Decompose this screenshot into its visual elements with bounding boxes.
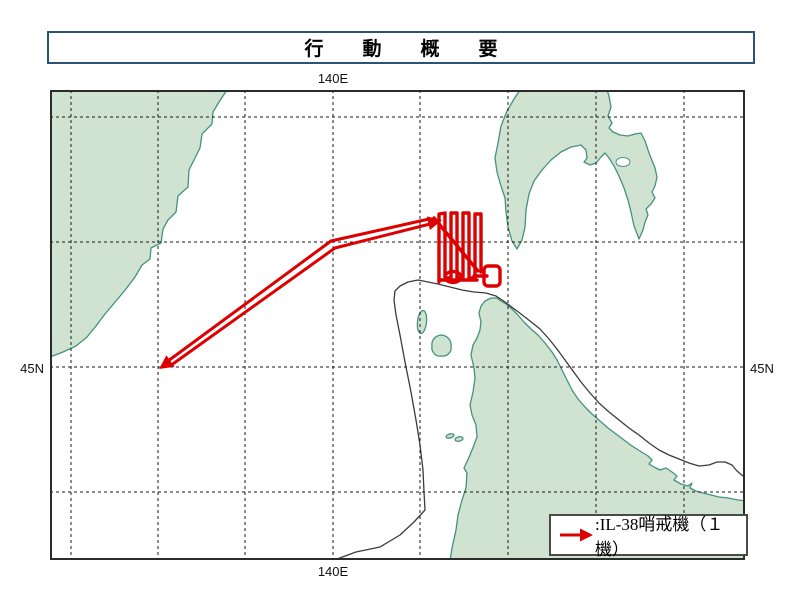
landmass-sakhalin-south: [495, 90, 657, 249]
parallel-label-left: 45N: [0, 360, 44, 377]
meridian-label-top: 140E: [283, 70, 383, 87]
island-rebun: [416, 310, 427, 334]
island-teuri: [446, 433, 455, 439]
landmass-sakhalin-west: [50, 90, 227, 357]
flight-track-leg-return: [170, 224, 430, 366]
page-title: 行 動 概 要: [47, 31, 755, 64]
island-rishiri: [432, 335, 451, 356]
map-canvas: [50, 90, 745, 560]
page-title-text: 行 動 概 要: [294, 34, 507, 61]
island-yagishiri: [455, 436, 464, 442]
legend-label: :IL-38哨戒機（１機）: [595, 510, 746, 560]
meridian-label-bottom: 140E: [283, 563, 383, 580]
legend-box: :IL-38哨戒機（１機）: [549, 514, 748, 556]
lagoon-busse: [616, 158, 630, 167]
parallel-label-right: 45N: [750, 360, 794, 377]
flight-direction-arrow-icon: [558, 527, 594, 543]
